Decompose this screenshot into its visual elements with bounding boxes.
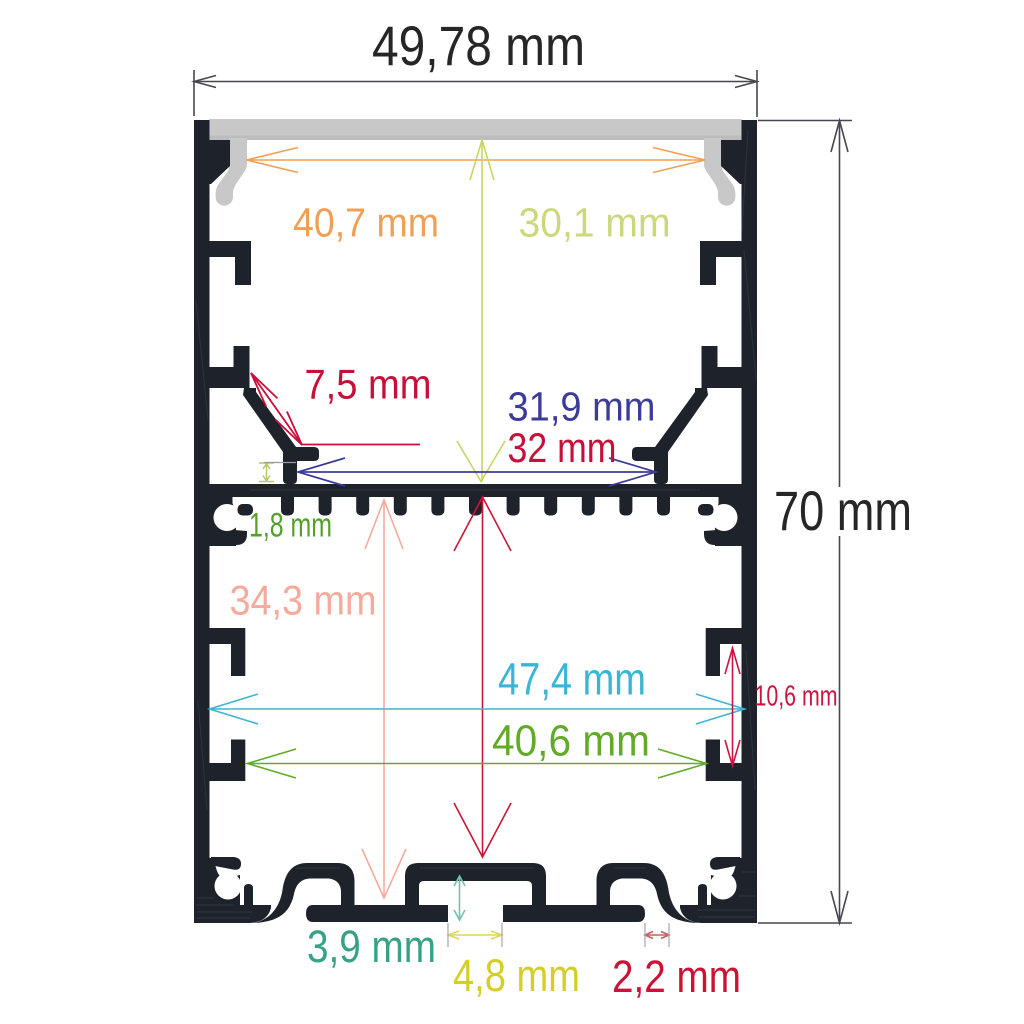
- svg-text:3,9 mm: 3,9 mm: [307, 921, 436, 972]
- svg-text:1,8 mm: 1,8 mm: [249, 507, 332, 545]
- svg-text:2,2 mm: 2,2 mm: [612, 951, 741, 1002]
- svg-text:49,78 mm: 49,78 mm: [372, 15, 585, 77]
- svg-text:30,1 mm: 30,1 mm: [519, 200, 671, 246]
- svg-text:40,6 mm: 40,6 mm: [492, 717, 650, 766]
- svg-text:31,9 mm: 31,9 mm: [508, 384, 656, 430]
- svg-text:32 mm: 32 mm: [508, 424, 617, 471]
- svg-text:10,6 mm: 10,6 mm: [755, 681, 838, 713]
- svg-text:7,5 mm: 7,5 mm: [305, 361, 432, 408]
- svg-text:70 mm: 70 mm: [774, 480, 912, 542]
- svg-text:47,4 mm: 47,4 mm: [498, 654, 646, 705]
- svg-text:4,8 mm: 4,8 mm: [453, 950, 580, 1001]
- svg-text:34,3 mm: 34,3 mm: [230, 577, 377, 624]
- svg-text:40,7 mm: 40,7 mm: [293, 200, 439, 246]
